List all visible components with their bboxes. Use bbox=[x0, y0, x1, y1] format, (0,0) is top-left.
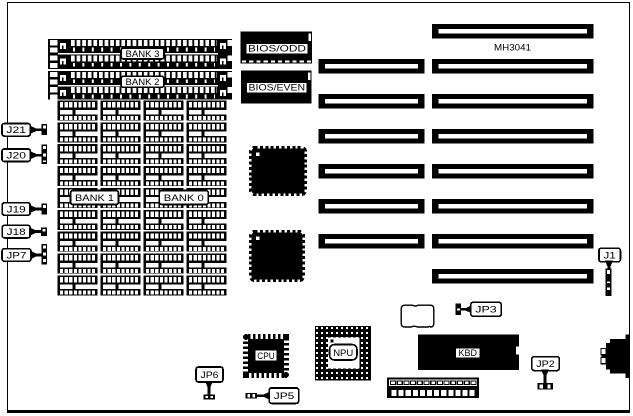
svg-text:J1: J1 bbox=[603, 250, 616, 261]
svg-text:CPU: CPU bbox=[257, 351, 275, 362]
svg-text:BIOS/EVEN: BIOS/EVEN bbox=[249, 83, 306, 93]
svg-text:BANK 0: BANK 0 bbox=[164, 193, 204, 204]
svg-text:J20: J20 bbox=[6, 151, 26, 162]
svg-text:NPU: NPU bbox=[333, 348, 353, 359]
svg-text:JP3: JP3 bbox=[475, 305, 497, 316]
svg-text:JP2: JP2 bbox=[536, 359, 555, 370]
svg-text:KBD: KBD bbox=[459, 348, 478, 358]
svg-text:BANK 2: BANK 2 bbox=[126, 77, 160, 88]
svg-text:JP6: JP6 bbox=[201, 370, 219, 381]
svg-text:BANK 1: BANK 1 bbox=[75, 193, 114, 204]
svg-text:J21: J21 bbox=[6, 125, 26, 136]
svg-text:J19: J19 bbox=[7, 204, 26, 215]
svg-text:MH3041: MH3041 bbox=[494, 43, 531, 53]
svg-text:JP5: JP5 bbox=[274, 391, 295, 402]
svg-text:JP7: JP7 bbox=[7, 250, 27, 261]
svg-text:BANK 3: BANK 3 bbox=[126, 49, 160, 60]
svg-text:J18: J18 bbox=[7, 227, 26, 238]
svg-text:BIOS/ODD: BIOS/ODD bbox=[248, 44, 307, 54]
